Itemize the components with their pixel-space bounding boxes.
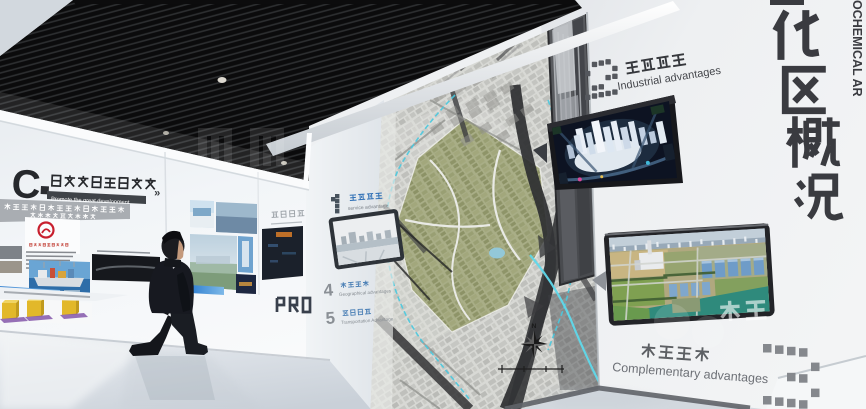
svg-text:5: 5 (325, 308, 336, 328)
svg-text:OCHEMICAL AR: OCHEMICAL AR (850, 0, 864, 97)
svg-text:»: » (154, 187, 161, 199)
svg-text:4: 4 (323, 280, 334, 300)
svg-text:N: N (531, 323, 536, 330)
